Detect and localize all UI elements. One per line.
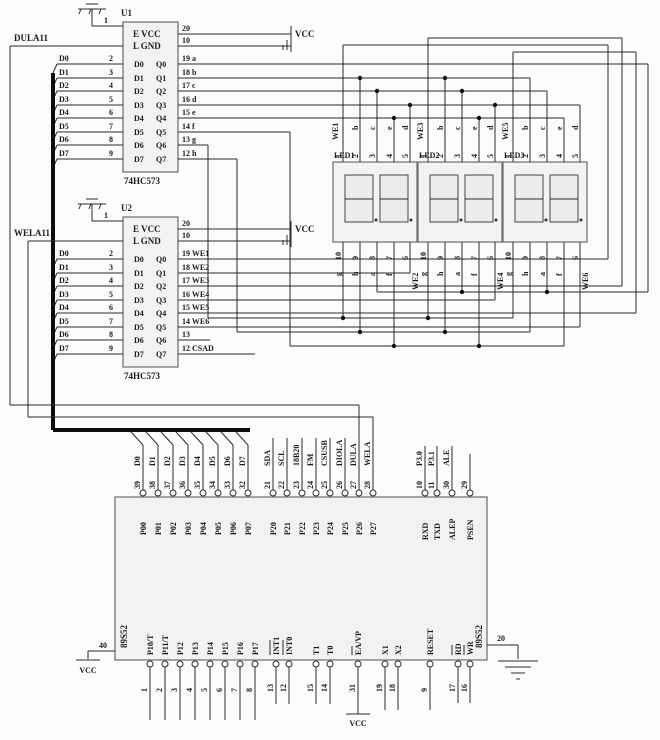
pin-number: 2 — [109, 249, 113, 258]
pin-number: 2 — [351, 154, 360, 158]
pin-number: 5 — [571, 154, 580, 158]
mcu-ref: 89S52 — [474, 624, 484, 648]
segment-label: d — [401, 125, 410, 130]
segment-label: e — [555, 126, 564, 130]
output-label: 12 h — [182, 149, 197, 158]
pin-number: 3 — [368, 154, 377, 158]
port-label: P02 — [169, 522, 178, 535]
pin-number: 1 — [419, 154, 428, 158]
pin-number: 15 — [306, 684, 315, 692]
segment-label: e — [385, 126, 394, 130]
pin-number: 7 — [385, 256, 394, 260]
pin-number: 39 — [133, 481, 142, 489]
output-label: 17 WE3 — [182, 276, 209, 285]
port-label: PSEN — [466, 519, 475, 540]
vcc-label: VCC — [295, 224, 315, 234]
we-top-label: WE1 — [331, 123, 340, 140]
pin-number: 7 — [230, 688, 239, 692]
pin-name: Q5 — [156, 128, 166, 137]
port-label: P03 — [184, 522, 193, 535]
signal-label: P3.0 — [415, 451, 424, 466]
net-label: D7 — [59, 344, 69, 353]
output-label: 19 a — [182, 54, 196, 63]
pin-number: 36 — [178, 481, 187, 489]
pin-number: 8 — [109, 330, 113, 339]
port-label: P26 — [355, 522, 364, 535]
pin-name: Q2 — [156, 282, 166, 291]
pin-number: 5 — [109, 95, 113, 104]
signal-label: FM — [306, 453, 315, 466]
ground-symbol — [487, 645, 538, 679]
pin-name: Q5 — [156, 323, 166, 332]
pin-number: 5 — [401, 154, 410, 158]
output-label: 19 WE1 — [182, 249, 209, 258]
pin-name: D5 — [134, 323, 144, 332]
pin-number: 2 — [521, 154, 530, 158]
pin-number: 37 — [163, 481, 172, 489]
pin-name: D2 — [134, 87, 144, 96]
port-label: P14 — [206, 642, 215, 655]
pin-name: D3 — [134, 296, 144, 305]
pin-number: 25 — [320, 481, 329, 489]
port-label: P00 — [139, 522, 148, 535]
pin-number: 40 — [99, 641, 107, 650]
port-label: T1 — [312, 646, 321, 655]
signal-label: 18B20 — [292, 445, 301, 466]
output-label: 14 f — [182, 122, 195, 131]
pin-number: 32 — [238, 481, 247, 489]
pin-name: Q1 — [156, 74, 166, 83]
u1-row-e: E VCC — [133, 29, 161, 39]
pin-number: 10 — [182, 36, 190, 45]
net-label: D4 — [59, 108, 69, 117]
pin-number: 29 — [460, 481, 469, 489]
decimal-point — [545, 219, 548, 222]
segment-label: f — [385, 273, 394, 276]
u2-ref: U2 — [121, 203, 132, 213]
output-label: 15 e — [182, 108, 196, 117]
pin-name: D2 — [134, 282, 144, 291]
pin-number: 1 — [334, 154, 343, 158]
signal-label: D1 — [148, 456, 157, 466]
pin-name: Q0 — [156, 60, 166, 69]
pin-number: 18 — [388, 684, 397, 692]
net-label: D5 — [59, 122, 69, 131]
pin-name: Q0 — [156, 255, 166, 264]
pin-name: Q3 — [156, 101, 166, 110]
port-label: P11/T — [161, 634, 170, 655]
output-label: 17 c — [182, 81, 196, 90]
pin-number: 1 — [104, 211, 108, 220]
pin-number: 8 — [368, 256, 377, 260]
signal-label: SCL — [277, 450, 286, 466]
port-label: ALEP — [448, 519, 457, 540]
u1-row-l: L GND — [133, 41, 161, 51]
u1-ref: U1 — [121, 8, 132, 18]
pin-number: 10 — [504, 252, 513, 260]
pin-number: 24 — [306, 481, 315, 489]
signal-label: P3.1 — [427, 451, 436, 466]
pin-number: 21 — [263, 481, 272, 489]
signal-label: D2 — [163, 456, 172, 466]
pin-name: D6 — [134, 141, 144, 150]
signal-label: D0 — [133, 456, 142, 466]
pin-name: D4 — [134, 309, 144, 318]
we-top-label: WE5 — [501, 123, 510, 140]
segment-label: g — [334, 272, 343, 276]
pin-name: D7 — [134, 350, 144, 359]
port-label: P20 — [269, 522, 278, 535]
pin-name: Q4 — [156, 114, 166, 123]
segment-label: f — [555, 273, 564, 276]
vcc-symbol — [178, 26, 291, 52]
ground-symbol — [78, 4, 123, 26]
pin-number: 3 — [538, 154, 547, 158]
pin-number: 4 — [555, 154, 564, 158]
pin-number: 6 — [215, 688, 224, 692]
port-label: P15 — [221, 642, 230, 655]
net-label: D0 — [59, 249, 69, 258]
pin-name: D7 — [134, 155, 144, 164]
ground-symbol — [78, 199, 123, 221]
segment-label: f — [470, 273, 479, 276]
net-label: D2 — [59, 276, 69, 285]
pin-name: D5 — [134, 128, 144, 137]
port-label: T0 — [326, 646, 335, 655]
pin-name: D1 — [134, 269, 144, 278]
pin-name: Q6 — [156, 336, 166, 345]
pin-number: 9 — [351, 256, 360, 260]
pin-name: D1 — [134, 74, 144, 83]
we-top-label: WE3 — [416, 123, 425, 140]
output-label: 16 WE4 — [182, 290, 209, 299]
net-label: D2 — [59, 81, 69, 90]
pin-number: 4 — [185, 688, 194, 692]
pin-number: 2 — [109, 54, 113, 63]
net-label: D1 — [59, 263, 69, 272]
vcc-label: VCC — [349, 719, 367, 728]
pin-name: Q7 — [156, 155, 166, 164]
port-label: TXD — [433, 523, 442, 540]
port-label: P27 — [369, 522, 378, 535]
pin-name: Q7 — [156, 350, 166, 359]
port-label: P13 — [191, 642, 200, 655]
vcc-symbol — [76, 651, 115, 660]
pin-number: 19 — [375, 684, 384, 692]
pin-number: 6 — [109, 303, 113, 312]
output-label: 13 — [182, 330, 190, 339]
pin-number: 10 — [419, 252, 428, 260]
net-label: D3 — [59, 290, 69, 299]
led3-display — [503, 162, 587, 242]
decimal-point — [580, 219, 583, 222]
pin-number: 16 — [460, 684, 469, 692]
port-label: P10/T — [146, 634, 155, 655]
pin-number: 3 — [109, 68, 113, 77]
port-label: P04 — [199, 522, 208, 535]
pin-number: 7 — [109, 317, 113, 326]
pin-name: Q3 — [156, 296, 166, 305]
segment-label: g — [504, 272, 513, 276]
pin-number: 2 — [436, 154, 445, 158]
port-label: P07 — [244, 522, 253, 535]
port-label: INT1 — [272, 637, 281, 655]
pin-number: 28 — [363, 481, 372, 489]
pin-number: 9 — [109, 149, 113, 158]
pin-number: 2 — [155, 688, 164, 692]
port-label: P17 — [251, 642, 260, 655]
pin-number: 6 — [571, 256, 580, 260]
we-bottom-label: WE6 — [581, 273, 590, 290]
net-label: D6 — [59, 330, 69, 339]
pin-number: 10 — [182, 231, 190, 240]
output-label: 12 CSAD — [182, 344, 214, 353]
segment-label: d — [486, 125, 495, 130]
pin-name: Q6 — [156, 141, 166, 150]
segment-label: h — [521, 271, 530, 276]
u2-row-l: L GND — [133, 236, 161, 246]
output-label: 13 g — [182, 135, 196, 144]
port-label: X1 — [381, 645, 390, 655]
pin-number: 20 — [497, 634, 505, 643]
segment-label: c — [453, 126, 462, 130]
pin-number: 14 — [320, 684, 329, 692]
port-label: RD — [454, 643, 463, 655]
pin-number: 30 — [442, 481, 451, 489]
vcc-label: VCC — [79, 666, 97, 675]
pin-number: 20 — [182, 219, 190, 228]
decimal-point — [495, 219, 498, 222]
pin-number: 20 — [182, 24, 190, 33]
port-label: P01 — [154, 522, 163, 535]
net-label: D3 — [59, 95, 69, 104]
port-label: X2 — [394, 645, 403, 655]
port-label: P12 — [176, 642, 185, 655]
u2-row-e: E VCC — [133, 224, 161, 234]
pin-number: 6 — [486, 256, 495, 260]
segment-label: h — [436, 271, 445, 276]
net-label: D4 — [59, 303, 69, 312]
pin-number: 3 — [453, 154, 462, 158]
u1-part-number: 74HC573 — [124, 176, 161, 186]
net-label: D0 — [59, 54, 69, 63]
pin-name: D0 — [134, 60, 144, 69]
pin-number: 8 — [109, 135, 113, 144]
pin-number: 35 — [193, 481, 202, 489]
pin-name: Q2 — [156, 87, 166, 96]
segment-label: b — [351, 125, 360, 130]
pin-number: 5 — [200, 688, 209, 692]
signal-label: D4 — [193, 456, 202, 466]
signal-label: D7 — [238, 456, 247, 466]
port-label: INT0 — [285, 637, 294, 655]
pin-name: D0 — [134, 255, 144, 264]
pin-number: 10 — [334, 252, 343, 260]
pin-name: Q1 — [156, 269, 166, 278]
segment-label: c — [538, 126, 547, 130]
pin-name: D4 — [134, 114, 144, 123]
output-label: 18 b — [182, 68, 197, 77]
led2-display — [418, 162, 502, 242]
pin-number: 33 — [223, 481, 232, 489]
decimal-point — [375, 219, 378, 222]
output-label: 18 WE2 — [182, 263, 209, 272]
u2-part-number: 74HC573 — [124, 371, 161, 381]
port-label: P06 — [229, 522, 238, 535]
signal-label: D5 — [208, 456, 217, 466]
pin-number: 1 — [504, 154, 513, 158]
pin-number: 3 — [170, 688, 179, 692]
net-label: D7 — [59, 149, 69, 158]
port-label: P05 — [214, 522, 223, 535]
pin-number: 4 — [109, 81, 113, 90]
port-label: P16 — [236, 642, 245, 655]
pin-name: D3 — [134, 101, 144, 110]
port-label: RXD — [421, 522, 430, 540]
pin-number: 8 — [453, 256, 462, 260]
schematic-canvas: U1 74HC573 E VCC L GND 1 DULA11 20 10 VC… — [0, 0, 660, 740]
segment-label: a — [368, 272, 377, 276]
pin-number: 12 — [279, 684, 288, 692]
schematic-page: U1 74HC573 E VCC L GND 1 DULA11 20 10 VC… — [0, 0, 660, 740]
pin-number: 1 — [104, 16, 108, 25]
pin-number: 7 — [109, 122, 113, 131]
pin-number: 22 — [277, 481, 286, 489]
signal-label: CSUSB — [320, 440, 329, 466]
pin-name: Q4 — [156, 309, 166, 318]
pin-number: 9 — [420, 688, 429, 692]
pin-number: 5 — [486, 154, 495, 158]
signal-label: D3 — [178, 456, 187, 466]
pin-number: 9 — [521, 256, 530, 260]
pin-number: 4 — [109, 276, 113, 285]
pin-number: 6 — [109, 108, 113, 117]
output-label: 14 WE6 — [182, 317, 209, 326]
port-label: P22 — [298, 522, 307, 535]
pin-number: 31 — [348, 684, 357, 692]
output-label: 16 d — [182, 95, 197, 104]
pin-number: 1 — [140, 688, 149, 692]
pin-number: 17 — [448, 684, 457, 692]
pin-number: 8 — [245, 688, 254, 692]
port-label: EA/VP — [354, 631, 363, 655]
output-label: 15 WE5 — [182, 303, 209, 312]
pin-number: 38 — [148, 481, 157, 489]
pin-number: 9 — [109, 344, 113, 353]
segment-label: a — [538, 272, 547, 276]
net-label: D1 — [59, 68, 69, 77]
decimal-point — [410, 219, 413, 222]
pin-number: 5 — [109, 290, 113, 299]
segment-label: c — [368, 126, 377, 130]
pin-number: 7 — [470, 256, 479, 260]
signal-label: SDA — [263, 450, 272, 466]
segment-label: a — [453, 272, 462, 276]
segment-label: d — [571, 125, 580, 130]
port-label: P25 — [341, 522, 350, 535]
port-label: P21 — [283, 522, 292, 535]
pin-number: 34 — [208, 481, 217, 489]
mcu-ref: 89S52 — [119, 624, 129, 648]
segment-label: h — [351, 271, 360, 276]
segment-label: b — [521, 125, 530, 130]
net-label: D6 — [59, 135, 69, 144]
segment-label: b — [436, 125, 445, 130]
pin-number: 8 — [538, 256, 547, 260]
net-label-dula11: DULA11 — [14, 33, 49, 43]
signal-label: DULA — [349, 443, 358, 466]
vcc-label: VCC — [295, 29, 315, 39]
port-label: P23 — [312, 522, 321, 535]
net-label: D5 — [59, 317, 69, 326]
vcc-symbol — [178, 221, 291, 247]
net-label-wela11: WELA11 — [14, 228, 51, 238]
pin-number: 6 — [401, 256, 410, 260]
pin-number: 7 — [555, 256, 564, 260]
pin-number: 11 — [427, 481, 436, 489]
signal-label: WELA — [363, 441, 372, 466]
pin-number: 26 — [335, 481, 344, 489]
pin-number: 27 — [349, 481, 358, 489]
led1-display — [333, 162, 417, 242]
port-label: P24 — [326, 522, 335, 535]
pin-number: 23 — [292, 481, 301, 489]
signal-label: ALE — [442, 450, 451, 466]
pin-number: 9 — [436, 256, 445, 260]
port-label: RESET — [426, 628, 435, 655]
pin-name: D6 — [134, 336, 144, 345]
pin-number: 4 — [385, 154, 394, 158]
pin-number: 13 — [266, 684, 275, 692]
pin-number: 4 — [470, 154, 479, 158]
pin-number: 10 — [415, 481, 424, 489]
signal-label: DIOLA — [335, 440, 344, 466]
segment-label: e — [470, 126, 479, 130]
segment-label: g — [419, 272, 428, 276]
signal-label: D6 — [223, 456, 232, 466]
decimal-point — [460, 219, 463, 222]
pin-number: 3 — [109, 263, 113, 272]
